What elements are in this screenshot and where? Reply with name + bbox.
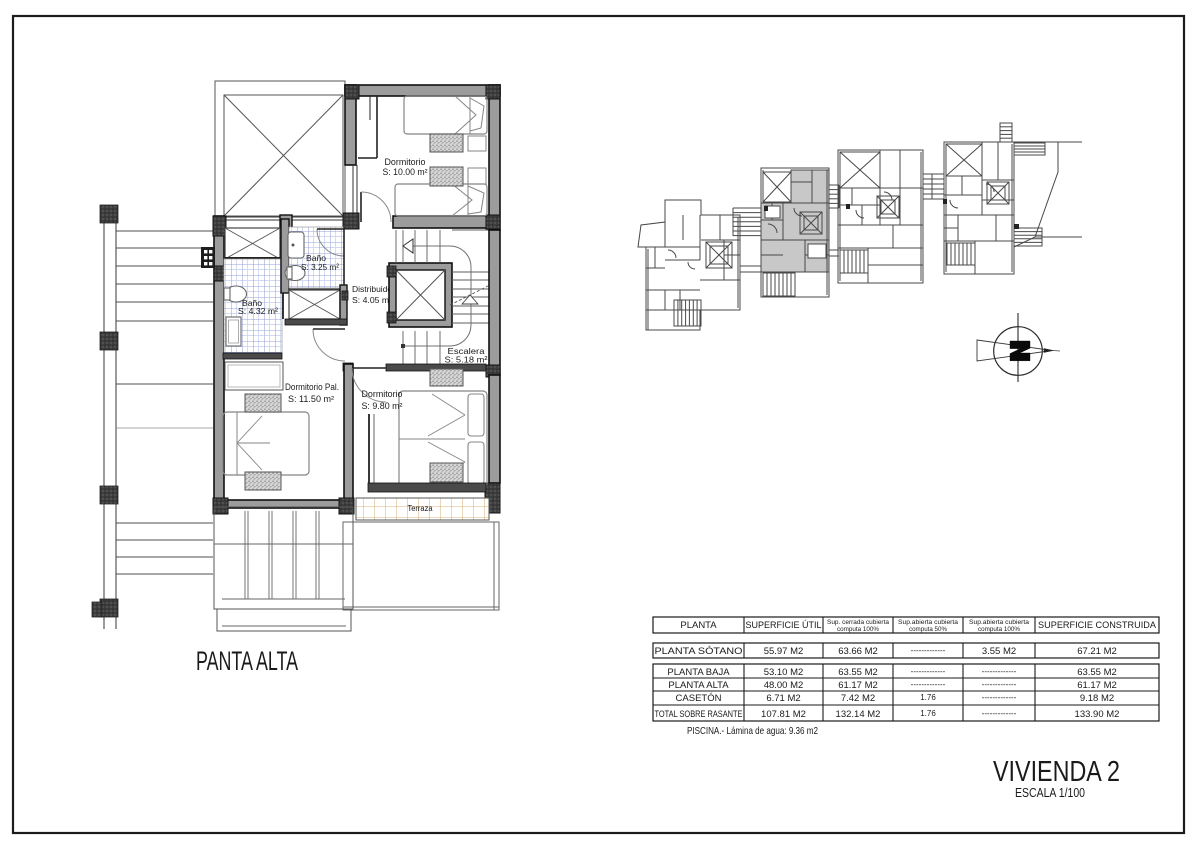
- svg-text:PLANTA: PLANTA: [680, 620, 717, 631]
- svg-text:PLANTA ALTA: PLANTA ALTA: [668, 680, 729, 691]
- svg-text:S: 4.05 m²: S: 4.05 m²: [352, 295, 392, 305]
- svg-text:63.66 M2: 63.66 M2: [838, 646, 878, 657]
- svg-text:S: 4.32 m²: S: 4.32 m²: [238, 306, 278, 316]
- svg-text:VIVIENDA 2: VIVIENDA 2: [993, 756, 1120, 788]
- svg-text:PANTA ALTA: PANTA ALTA: [196, 646, 298, 676]
- svg-text:computa 50%: computa 50%: [909, 626, 947, 633]
- svg-text:-------------: -------------: [911, 667, 946, 676]
- svg-text:48.00 M2: 48.00 M2: [764, 680, 804, 691]
- svg-text:133.90 M2: 133.90 M2: [1075, 709, 1120, 720]
- svg-text:Dormitorio Pal.: Dormitorio Pal.: [285, 382, 339, 392]
- svg-text:PISCINA.- Lámina de agua: 9.36: PISCINA.- Lámina de agua: 9.36 m2: [687, 725, 818, 737]
- svg-text:S: 11.50 m²: S: 11.50 m²: [288, 394, 334, 404]
- svg-text:6.71 M2: 6.71 M2: [766, 693, 800, 704]
- svg-text:TOTAL SOBRE RASANTE: TOTAL SOBRE RASANTE: [655, 709, 743, 720]
- svg-text:1.76: 1.76: [920, 709, 936, 718]
- svg-text:computa 100%: computa 100%: [978, 626, 1020, 633]
- svg-text:CASETÓN: CASETÓN: [676, 693, 722, 704]
- svg-text:Dormitorio: Dormitorio: [362, 389, 403, 399]
- svg-text:SUPERFICIE CONSTRUIDA: SUPERFICIE CONSTRUIDA: [1038, 620, 1157, 631]
- svg-text:PLANTA SÓTANO: PLANTA SÓTANO: [655, 646, 743, 657]
- svg-text:1.76: 1.76: [920, 693, 936, 702]
- svg-text:61.17 M2: 61.17 M2: [1077, 680, 1117, 691]
- svg-text:ESCALA 1/100: ESCALA 1/100: [1015, 785, 1085, 800]
- svg-text:Sup.abierta cubierta: Sup.abierta cubierta: [969, 619, 1030, 626]
- svg-text:Dormitorio: Dormitorio: [385, 157, 426, 167]
- svg-text:-------------: -------------: [911, 646, 946, 655]
- svg-text:-------------: -------------: [982, 709, 1017, 718]
- svg-text:Terraza: Terraza: [408, 504, 434, 513]
- svg-text:S: 10.00 m²: S: 10.00 m²: [383, 167, 428, 177]
- svg-text:9.18 M2: 9.18 M2: [1080, 693, 1114, 704]
- svg-text:67.21 M2: 67.21 M2: [1077, 646, 1117, 657]
- svg-text:61.17 M2: 61.17 M2: [838, 680, 878, 691]
- svg-text:-------------: -------------: [982, 693, 1017, 702]
- svg-text:3.55 M2: 3.55 M2: [982, 646, 1016, 657]
- svg-text:-------------: -------------: [982, 680, 1017, 689]
- svg-text:S: 5.18 m²: S: 5.18 m²: [445, 355, 488, 365]
- svg-text:53.10 M2: 53.10 M2: [764, 667, 804, 678]
- svg-text:63.55 M2: 63.55 M2: [1077, 667, 1117, 678]
- svg-text:-------------: -------------: [911, 680, 946, 689]
- svg-text:Sup. cerrada cubierta: Sup. cerrada cubierta: [827, 619, 889, 626]
- svg-text:Sup.abierta cubierta: Sup.abierta cubierta: [898, 619, 959, 626]
- svg-text:-------------: -------------: [982, 667, 1017, 676]
- svg-text:SUPERFICIE ÚTIL: SUPERFICIE ÚTIL: [746, 620, 822, 631]
- svg-text:132.14 M2: 132.14 M2: [836, 709, 881, 720]
- svg-text:107.81 M2: 107.81 M2: [761, 709, 806, 720]
- svg-text:55.97 M2: 55.97 M2: [764, 646, 804, 657]
- svg-text:PLANTA BAJA: PLANTA BAJA: [667, 667, 730, 678]
- svg-text:computa 100%: computa 100%: [837, 626, 879, 633]
- svg-text:S: 3.25 m²: S: 3.25 m²: [301, 262, 339, 272]
- svg-text:7.42 M2: 7.42 M2: [841, 693, 875, 704]
- svg-text:S: 9.80 m²: S: 9.80 m²: [362, 401, 403, 411]
- svg-text:63.55 M2: 63.55 M2: [838, 667, 878, 678]
